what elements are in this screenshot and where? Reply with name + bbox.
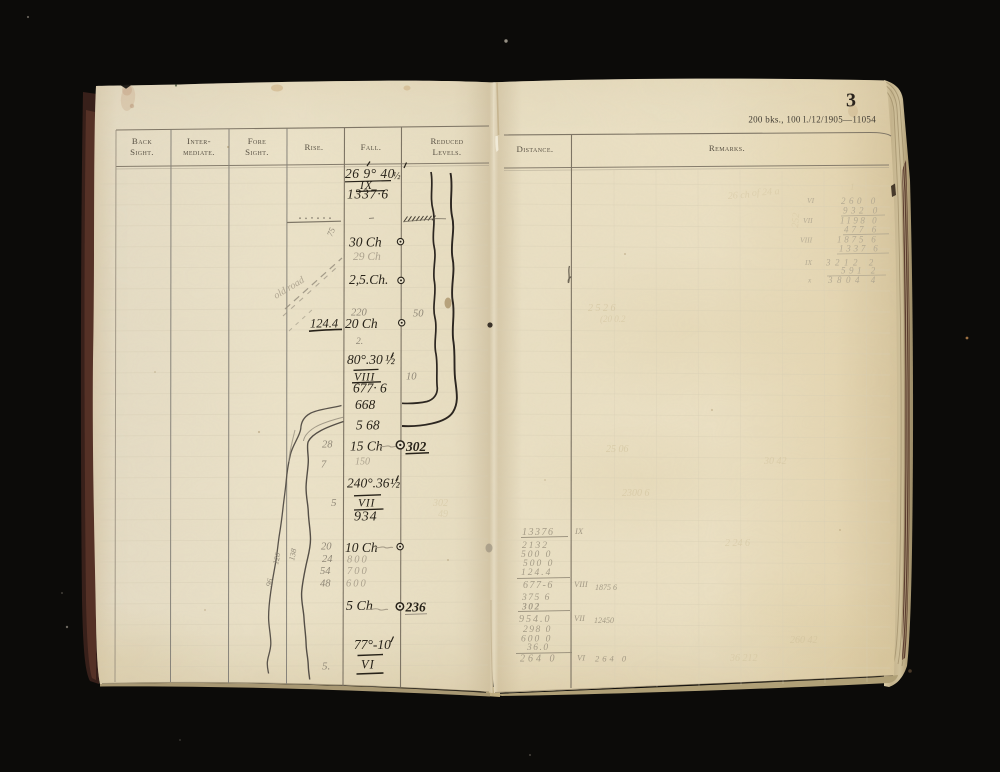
svg-text:26 9° 40: 26 9° 40 — [345, 166, 395, 181]
svg-text:Reduced: Reduced — [431, 136, 464, 146]
svg-text:of 24 a: of 24 a — [751, 186, 779, 199]
svg-text:30 42: 30 42 — [763, 456, 787, 467]
svg-text:(20 0.2: (20 0.2 — [600, 314, 626, 324]
svg-text:mediate.: mediate. — [183, 147, 215, 157]
svg-text:Back: Back — [132, 136, 152, 146]
svg-text:302: 302 — [405, 439, 427, 454]
svg-text:26 ch: 26 ch — [727, 189, 750, 202]
svg-text:Sight.: Sight. — [130, 147, 154, 157]
svg-text:264 0: 264 0 — [595, 654, 629, 664]
svg-text:29 Ch: 29 Ch — [353, 251, 381, 263]
svg-text:5.: 5. — [322, 661, 330, 673]
svg-text:1337 6: 1337 6 — [839, 244, 881, 254]
svg-text:2300 6: 2300 6 — [622, 488, 650, 499]
svg-text:12450: 12450 — [594, 616, 614, 625]
svg-text:10: 10 — [406, 372, 417, 383]
svg-text:½: ½ — [385, 352, 395, 367]
svg-text:124.4: 124.4 — [310, 317, 338, 331]
svg-text:28: 28 — [322, 440, 333, 451]
svg-text:5: 5 — [331, 497, 337, 509]
svg-text:13376: 13376 — [522, 527, 555, 538]
svg-text:677-6: 677-6 — [523, 580, 554, 591]
svg-text:48: 48 — [320, 579, 331, 590]
svg-text:49: 49 — [438, 509, 448, 520]
svg-text:Sight.: Sight. — [245, 147, 269, 157]
svg-text:IX: IX — [574, 526, 584, 536]
svg-text:932 0: 932 0 — [843, 206, 881, 216]
svg-text:VII: VII — [803, 216, 813, 225]
svg-text:77°-10: 77°-10 — [354, 637, 391, 652]
svg-text:VI: VI — [361, 658, 375, 672]
svg-text:591 2: 591 2 — [841, 266, 879, 276]
svg-text:252: 252 — [790, 212, 802, 228]
svg-text:600: 600 — [346, 579, 368, 590]
svg-text:260 42: 260 42 — [790, 635, 818, 646]
svg-text:240°.36: 240°.36 — [347, 476, 390, 491]
svg-text:2 5 2 6: 2 5 2 6 — [588, 303, 616, 314]
svg-text:800: 800 — [347, 555, 369, 566]
svg-text:20: 20 — [321, 542, 332, 553]
svg-text:1875 6: 1875 6 — [595, 583, 617, 592]
svg-text:15 Ch: 15 Ch — [350, 439, 383, 454]
svg-text:25 06: 25 06 — [606, 444, 629, 455]
svg-text:5 Ch: 5 Ch — [346, 599, 373, 614]
svg-text:2,5.Ch.: 2,5.Ch. — [349, 272, 388, 287]
svg-text:36.0: 36.0 — [526, 643, 550, 653]
svg-text:x: x — [807, 276, 812, 285]
svg-text:Fore: Fore — [248, 136, 267, 146]
svg-text:IX: IX — [804, 258, 812, 267]
svg-text:80°.30: 80°.30 — [347, 352, 383, 367]
svg-text:VII: VII — [358, 498, 375, 510]
svg-text:1337·6: 1337·6 — [347, 187, 389, 202]
svg-text:2 24 6: 2 24 6 — [725, 538, 750, 549]
svg-text:VI: VI — [807, 196, 815, 205]
svg-text:7: 7 — [321, 460, 327, 471]
svg-text:677· 6: 677· 6 — [353, 381, 387, 396]
svg-text:Inter-: Inter- — [187, 136, 211, 146]
svg-text:264 0: 264 0 — [520, 654, 558, 665]
svg-text:200 bks., 100 l./12/1905—11054: 200 bks., 100 l./12/1905—11054 — [748, 115, 876, 125]
svg-text:668: 668 — [355, 397, 376, 412]
svg-text:298 0: 298 0 — [523, 625, 552, 635]
svg-text:54: 54 — [320, 566, 331, 577]
svg-text:954.0: 954.0 — [519, 614, 552, 625]
svg-text:50: 50 — [413, 309, 424, 320]
svg-text:124.4: 124.4 — [521, 568, 552, 578]
svg-text:5 68: 5 68 — [356, 418, 380, 433]
svg-text:477 6: 477 6 — [844, 225, 879, 235]
svg-text:236: 236 — [405, 600, 427, 615]
svg-text:375 6: 375 6 — [521, 593, 551, 603]
svg-text:Distance.: Distance. — [516, 144, 553, 154]
svg-text:36 212: 36 212 — [729, 653, 758, 664]
svg-text:700: 700 — [347, 566, 369, 577]
svg-text:24: 24 — [322, 554, 333, 565]
svg-text:302: 302 — [432, 498, 448, 509]
svg-text:Remarks.: Remarks. — [709, 143, 745, 153]
svg-text:VIII: VIII — [800, 236, 813, 245]
svg-text:2.: 2. — [356, 337, 363, 347]
svg-text:150: 150 — [355, 457, 370, 468]
svg-text:3804 4: 3804 4 — [827, 275, 880, 285]
svg-text:Fall.: Fall. — [361, 142, 382, 152]
svg-text:Levels.: Levels. — [432, 147, 461, 157]
svg-text:1: 1 — [850, 182, 855, 192]
svg-text:VI: VI — [577, 653, 586, 663]
svg-text:30 Ch: 30 Ch — [348, 235, 382, 250]
svg-text:VII: VII — [574, 613, 586, 623]
svg-text:260 0: 260 0 — [841, 196, 879, 206]
svg-text:20 Ch: 20 Ch — [345, 316, 378, 331]
svg-text:½: ½ — [393, 171, 401, 182]
svg-text:VIII: VIII — [574, 579, 589, 589]
svg-text:934: 934 — [354, 510, 377, 525]
svg-text:10 Ch: 10 Ch — [345, 540, 378, 555]
svg-text:½: ½ — [390, 476, 400, 491]
svg-text:Rise.: Rise. — [304, 142, 323, 152]
